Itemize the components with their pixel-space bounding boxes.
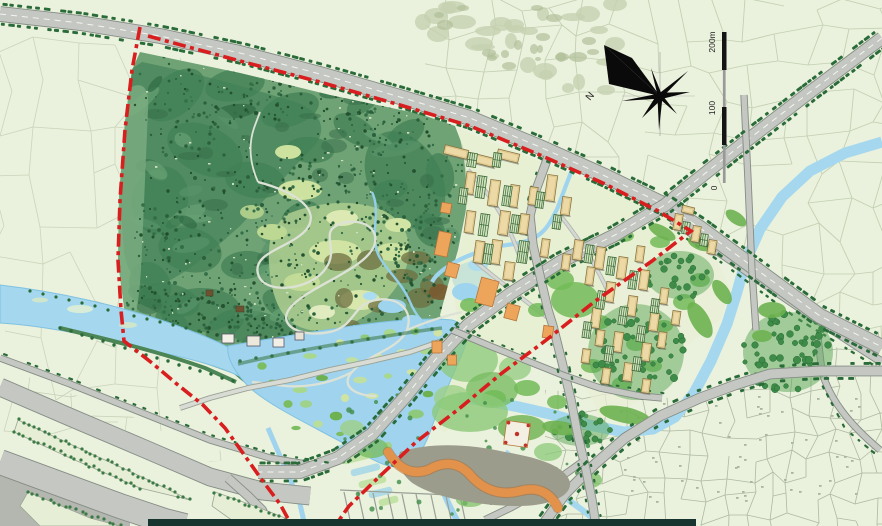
svg-text:0: 0	[709, 185, 719, 190]
svg-text:200m: 200m	[707, 31, 717, 52]
svg-text:100: 100	[707, 101, 717, 115]
